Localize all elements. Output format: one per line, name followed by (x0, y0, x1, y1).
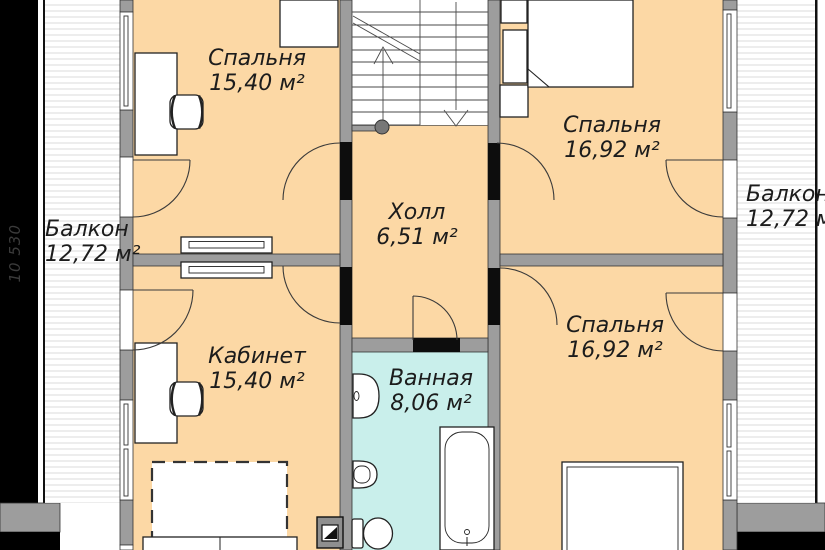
sink (353, 374, 379, 418)
bottom-left-black-band (0, 532, 60, 550)
window (120, 545, 133, 550)
balcony-door-opening (723, 160, 737, 218)
room-label-bedroom-top-left: Спальня 15,40 м² (208, 46, 306, 96)
balcony-door-opening (120, 157, 133, 217)
room-label-balcony-left: Балкон 12,72 м² (45, 217, 140, 267)
door (413, 338, 460, 352)
room-name: Холл (376, 200, 457, 225)
room-label-hall: Холл 6,51 м² (376, 200, 457, 250)
toilet-tank (352, 519, 363, 548)
room-label-balcony-right: Балкон 12,72 м² (746, 182, 825, 232)
bathtub (440, 427, 494, 550)
bottom-right-wall-band (737, 503, 825, 532)
room-area: 12,72 м² (746, 207, 825, 232)
office-chair (170, 95, 203, 129)
door (340, 142, 352, 200)
room-name: Спальня (566, 313, 664, 338)
bed (528, 0, 633, 87)
office-chair (170, 382, 203, 416)
interior-wall-right (500, 254, 723, 266)
vent-shaft (317, 517, 343, 548)
room-label-bathroom: Ванная 8,06 м² (389, 366, 473, 416)
room-name: Балкон (746, 182, 825, 207)
side-dimension-label: 10 530 (6, 224, 24, 283)
door (488, 268, 500, 325)
bed (562, 462, 683, 550)
stair-newel-post (375, 120, 389, 134)
room-name: Ванная (389, 366, 473, 391)
wardrobe (280, 0, 338, 47)
room-name: Балкон (45, 217, 140, 242)
toilet (364, 518, 393, 549)
balcony-right-floor (737, 0, 815, 503)
room-label-bedroom-top-right: Спальня 16,92 м² (563, 113, 661, 163)
room-name: Спальня (208, 46, 306, 71)
room-label-office: Кабинет 15,40 м² (208, 344, 306, 394)
room-name: Кабинет (208, 344, 306, 369)
room-area: 16,92 м² (563, 138, 661, 163)
door (488, 143, 500, 200)
room-area: 15,40 м² (208, 71, 306, 96)
room-name: Спальня (563, 113, 661, 138)
bedroom-bottom-right-furniture (562, 462, 683, 550)
room-area: 6,51 м² (376, 225, 457, 250)
bidet (353, 461, 377, 488)
door (340, 267, 352, 325)
balcony-door-opening (723, 293, 737, 351)
room-area: 12,72 м² (45, 242, 140, 267)
right-balcony-edge-line (815, 0, 818, 550)
floor-plan: Спальня 15,40 м² Спальня 16,92 м² Холл 6… (0, 0, 825, 550)
nightstand (503, 30, 527, 83)
bottom-right-black-band (737, 532, 825, 550)
room-area: 16,92 м² (566, 338, 664, 363)
bottom-left-wall-band (0, 503, 60, 532)
room-area: 15,40 м² (208, 369, 306, 394)
nightstand (501, 0, 527, 23)
room-label-bedroom-bottom-right: Спальня 16,92 м² (566, 313, 664, 363)
balcony-door-opening (120, 290, 133, 350)
floor-plan-drawing (0, 0, 825, 550)
room-area: 8,06 м² (389, 391, 473, 416)
wardrobe (500, 85, 528, 117)
